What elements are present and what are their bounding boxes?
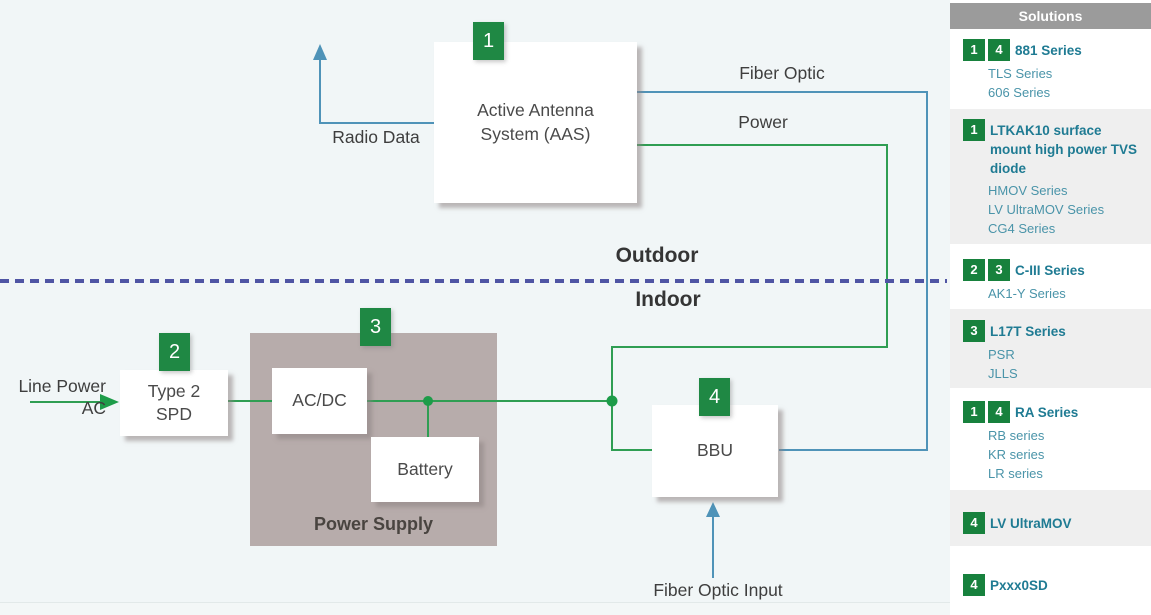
page: Active Antenna System (AAS) Type 2 SPD A… xyxy=(0,0,1151,615)
solutions-row-head: 4Pxxx0SD xyxy=(963,574,1141,596)
bbu-box: BBU xyxy=(652,405,778,497)
step-badge-1: 1 xyxy=(473,22,504,60)
solutions-row: 4Pxxx0SD xyxy=(950,546,1151,615)
solution-step-badge: 4 xyxy=(963,574,985,596)
solutions-row-head: 14RA Series xyxy=(963,401,1141,423)
step-badge-4: 4 xyxy=(699,378,730,416)
solution-series-sublink[interactable]: RB series xyxy=(988,426,1141,445)
indoor-label: Indoor xyxy=(588,288,748,312)
aas-label-line1: Active Antenna xyxy=(477,99,594,122)
solution-step-badge: 3 xyxy=(988,259,1010,281)
solution-sub-items: PSRJLLS xyxy=(988,345,1141,383)
solutions-row: 14RA SeriesRB seriesKR seriesLR series xyxy=(950,388,1151,490)
solution-step-badge: 4 xyxy=(988,401,1010,423)
solution-step-badge: 3 xyxy=(963,320,985,342)
solution-step-badge: 1 xyxy=(963,119,985,141)
solution-series-sublink[interactable]: 606 Series xyxy=(988,83,1141,102)
spd-label-line1: Type 2 xyxy=(148,380,201,403)
solution-series-link[interactable]: LTKAK10 surface mount high power TVS dio… xyxy=(988,119,1141,178)
power-label: Power xyxy=(722,112,804,133)
solution-sub-items: HMOV SeriesLV UltraMOV SeriesCG4 Series xyxy=(988,181,1141,238)
solution-sub-items: AK1-Y Series xyxy=(988,284,1141,303)
solutions-row: 4LV UltraMOV xyxy=(950,490,1151,546)
solution-series-link[interactable]: 881 Series xyxy=(1013,39,1082,60)
solution-sub-items: TLS Series606 Series xyxy=(988,64,1141,102)
solution-series-sublink[interactable]: AK1-Y Series xyxy=(988,284,1141,303)
solution-series-sublink[interactable]: LR series xyxy=(988,464,1141,483)
solution-series-sublink[interactable]: JLLS xyxy=(988,364,1141,383)
solution-series-sublink[interactable]: LV UltraMOV Series xyxy=(988,200,1141,219)
spd-label-line2: SPD xyxy=(156,403,192,426)
junction-dot xyxy=(607,396,618,407)
network-diagram: Active Antenna System (AAS) Type 2 SPD A… xyxy=(0,0,950,615)
line-power-label-line2: AC xyxy=(2,397,106,419)
solutions-row-head: 4LV UltraMOV xyxy=(963,512,1141,534)
solutions-row-head: 3L17T Series xyxy=(963,320,1141,342)
solution-series-sublink[interactable]: PSR xyxy=(988,345,1141,364)
solution-sub-items: RB seriesKR seriesLR series xyxy=(988,426,1141,483)
solution-series-sublink[interactable]: CG4 Series xyxy=(988,219,1141,238)
solution-step-badge: 1 xyxy=(963,39,985,61)
acdc-label: AC/DC xyxy=(292,389,346,412)
fiber-optic-input-arrowhead-icon xyxy=(706,502,720,517)
solution-series-sublink[interactable]: HMOV Series xyxy=(988,181,1141,200)
power-supply-label: Power Supply xyxy=(250,514,497,535)
solution-series-link[interactable]: C-III Series xyxy=(1013,259,1085,280)
solution-step-badge: 2 xyxy=(963,259,985,281)
solution-step-badge: 4 xyxy=(963,512,985,534)
aas-box: Active Antenna System (AAS) xyxy=(434,42,637,203)
solution-series-sublink[interactable]: TLS Series xyxy=(988,64,1141,83)
radio-data-label: Radio Data xyxy=(320,127,432,148)
solutions-row: 1LTKAK10 surface mount high power TVS di… xyxy=(950,109,1151,244)
solutions-header: Solutions xyxy=(950,3,1151,29)
fiber-optic-input-label: Fiber Optic Input xyxy=(638,580,798,601)
radio-data-arrowhead-icon xyxy=(313,44,327,60)
battery-box: Battery xyxy=(371,437,479,502)
solution-step-badge: 1 xyxy=(963,401,985,423)
solution-step-badge: 4 xyxy=(988,39,1010,61)
spd-box: Type 2 SPD xyxy=(120,370,228,436)
acdc-box: AC/DC xyxy=(272,368,367,434)
junction-dot xyxy=(423,396,433,406)
line-power-label-line1: Line Power xyxy=(2,375,106,397)
outdoor-label: Outdoor xyxy=(577,244,737,268)
step-badge-3: 3 xyxy=(360,308,391,346)
solution-series-link[interactable]: LV UltraMOV xyxy=(988,512,1072,533)
solutions-rows: 14881 SeriesTLS Series606 Series1LTKAK10… xyxy=(950,29,1151,615)
battery-label: Battery xyxy=(397,458,452,481)
radio-data-wire xyxy=(320,58,434,123)
solution-series-link[interactable]: L17T Series xyxy=(988,320,1066,341)
fiber-optic-label: Fiber Optic xyxy=(726,63,838,84)
solutions-panel: Solutions 14881 SeriesTLS Series606 Seri… xyxy=(950,0,1151,615)
aas-label-line2: System (AAS) xyxy=(481,123,591,146)
solution-series-link[interactable]: RA Series xyxy=(1013,401,1078,422)
solutions-row-head: 14881 Series xyxy=(963,39,1141,61)
bbu-label: BBU xyxy=(697,439,733,462)
solutions-row: 14881 SeriesTLS Series606 Series xyxy=(950,29,1151,109)
solutions-row-head: 1LTKAK10 surface mount high power TVS di… xyxy=(963,119,1141,178)
solution-series-link[interactable]: Pxxx0SD xyxy=(988,574,1048,595)
solution-series-sublink[interactable]: KR series xyxy=(988,445,1141,464)
solutions-row-head: 23C-III Series xyxy=(963,259,1141,281)
line-power-ac-label: Line Power AC xyxy=(2,375,106,419)
step-badge-2: 2 xyxy=(159,333,190,371)
solutions-row: 23C-III SeriesAK1-Y Series xyxy=(950,244,1151,309)
solutions-row: 3L17T SeriesPSRJLLS xyxy=(950,309,1151,388)
